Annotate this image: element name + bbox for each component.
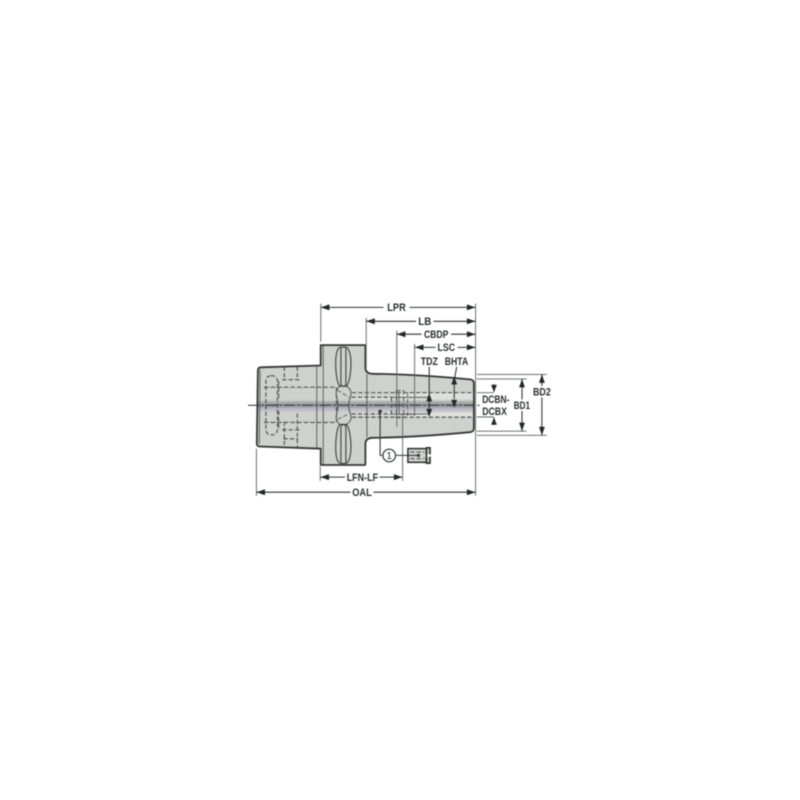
svg-text:LSC: LSC: [438, 342, 456, 354]
svg-text:DCBN-: DCBN-: [482, 394, 510, 406]
svg-text:BHTA: BHTA: [445, 356, 468, 368]
svg-text:TDZ: TDZ: [421, 356, 438, 368]
svg-text:BD2: BD2: [533, 387, 551, 399]
svg-text:BD1: BD1: [514, 400, 530, 412]
svg-text:LB: LB: [418, 316, 431, 328]
svg-text:DCBX: DCBX: [482, 406, 507, 418]
svg-text:OAL: OAL: [352, 487, 372, 499]
svg-text:CBDP: CBDP: [424, 329, 449, 341]
svg-text:LFN-LF: LFN-LF: [347, 472, 379, 484]
svg-text:1: 1: [386, 451, 392, 462]
svg-text:LPR: LPR: [387, 302, 406, 314]
